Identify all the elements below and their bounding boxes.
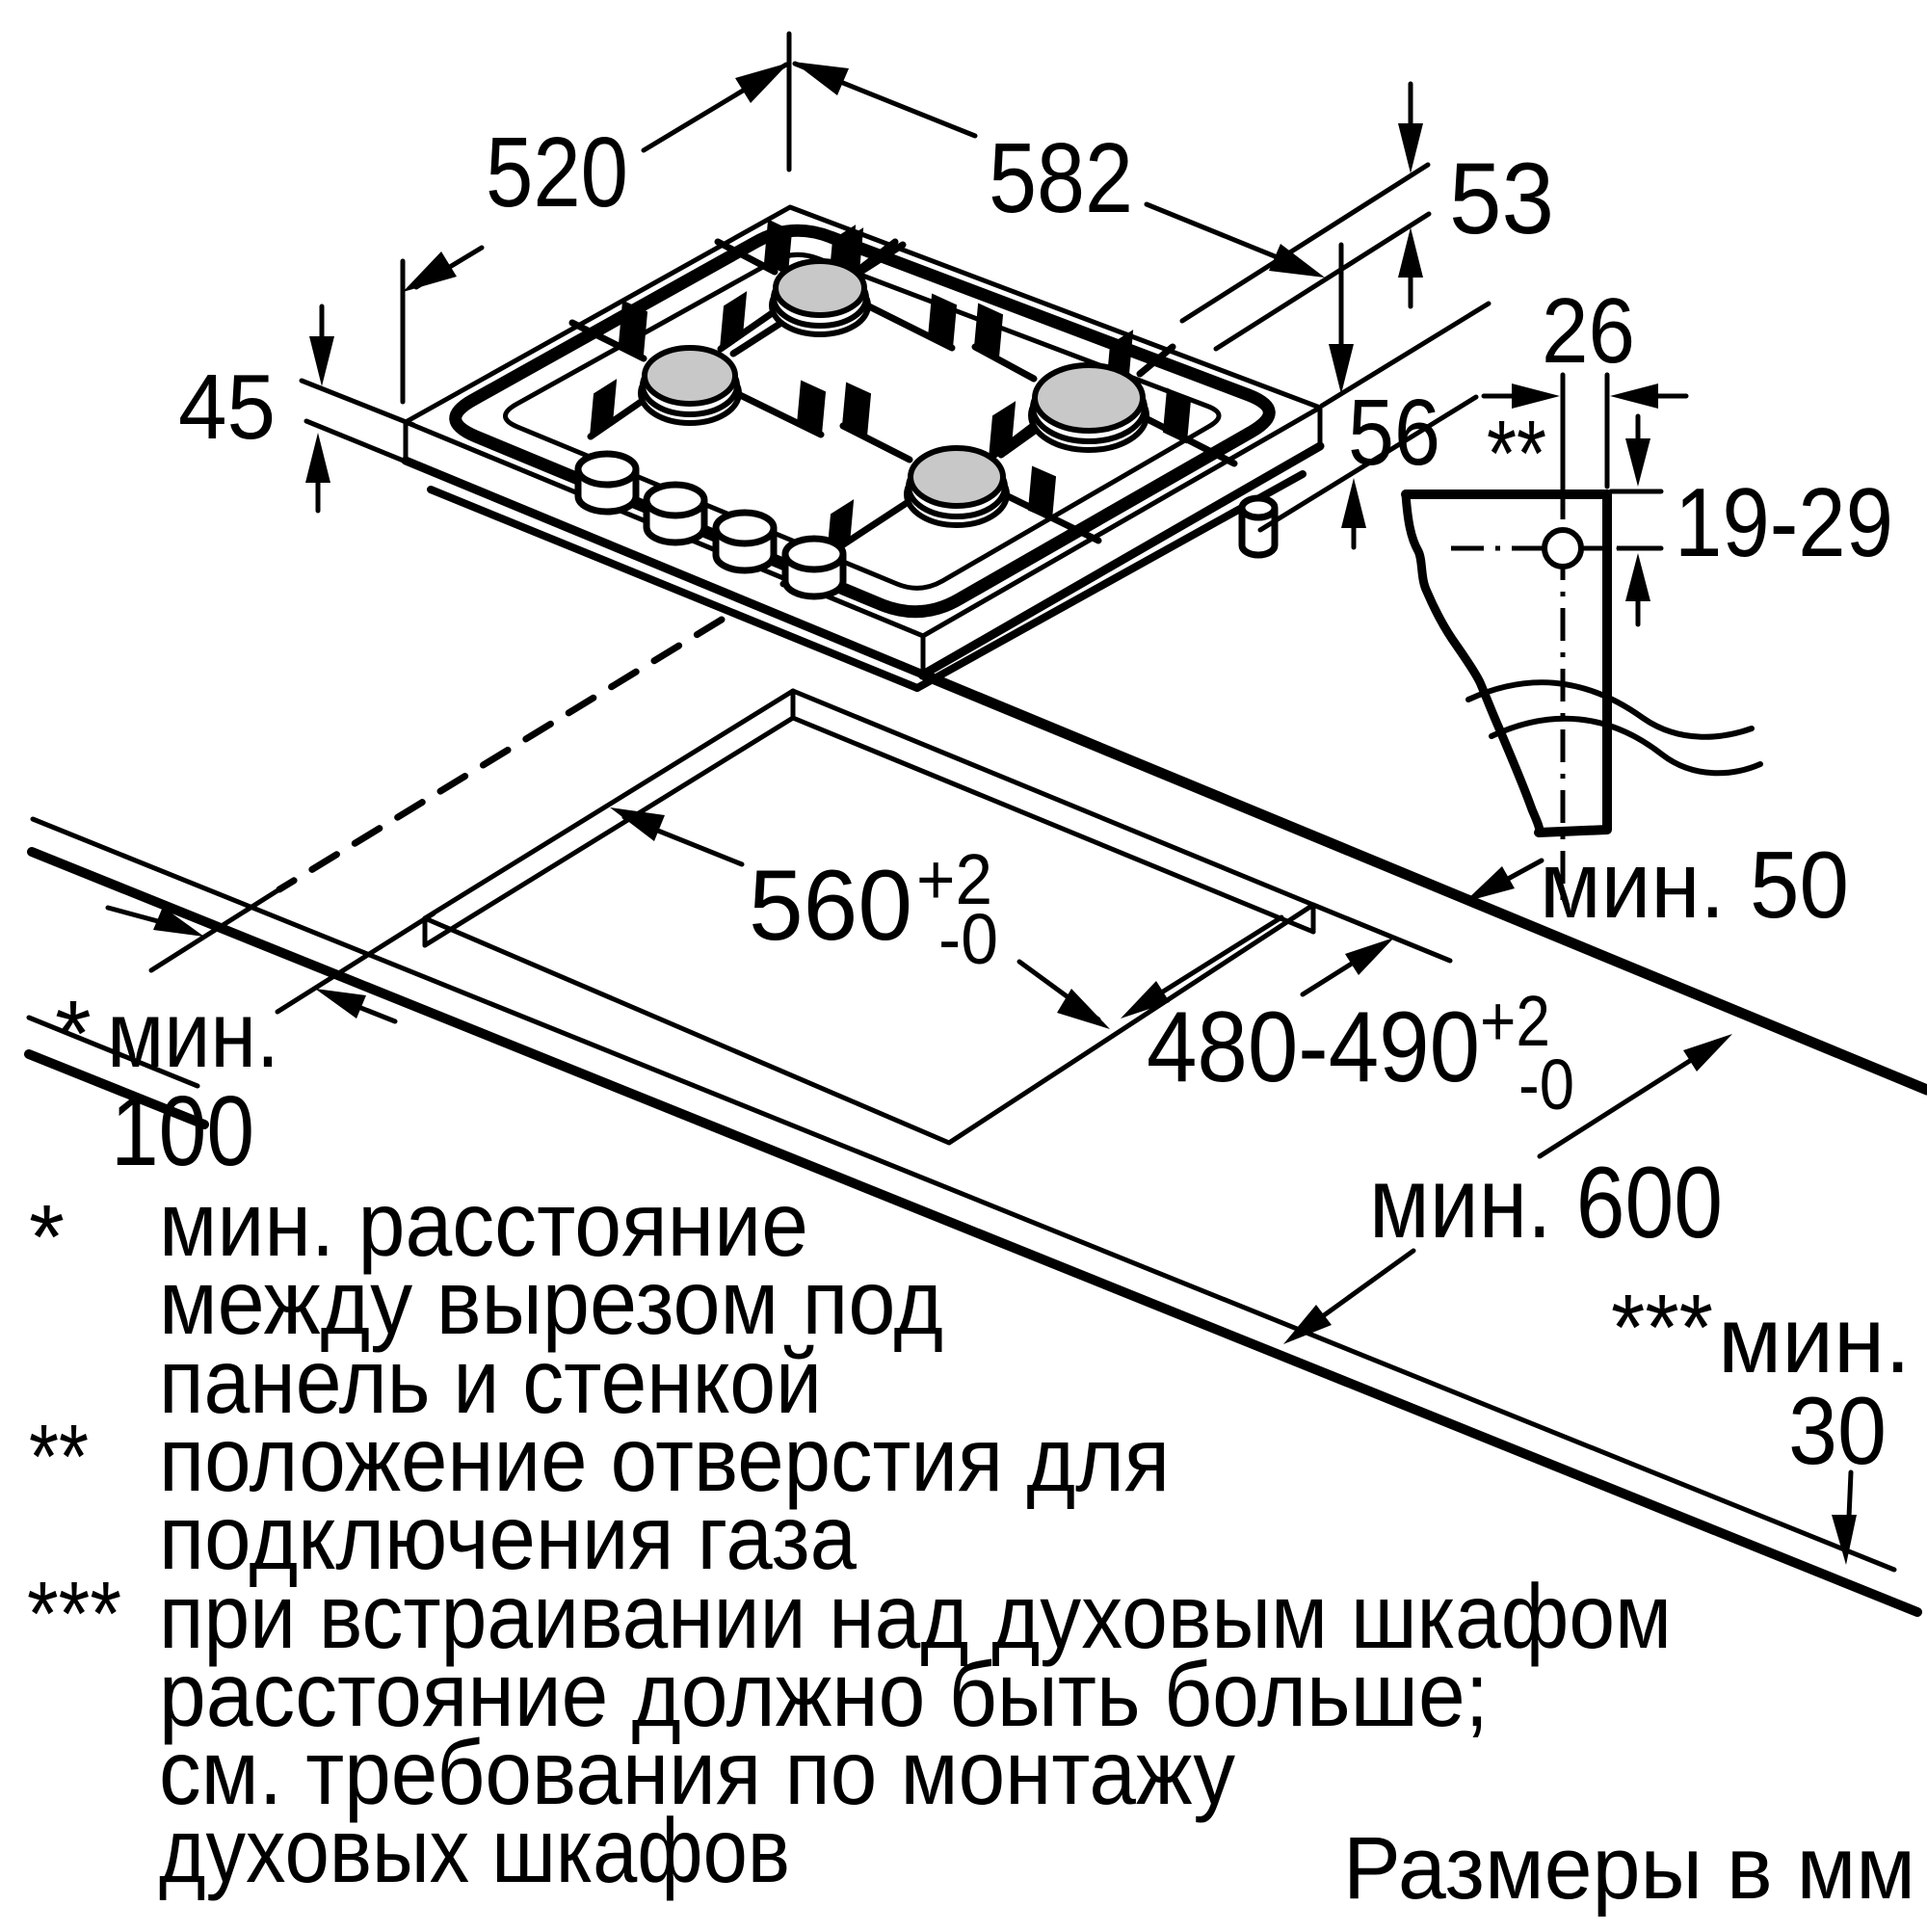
svg-text:19-29: 19-29 <box>1675 469 1893 577</box>
svg-text:*: * <box>55 981 92 1086</box>
svg-text:100: 100 <box>111 1075 254 1186</box>
svg-text:мин. 50: мин. 50 <box>1540 832 1849 938</box>
svg-text:53: 53 <box>1449 143 1554 255</box>
svg-text:26: 26 <box>1542 279 1635 383</box>
svg-text:мин. 600: мин. 600 <box>1369 1147 1723 1259</box>
svg-text:520: 520 <box>486 117 628 227</box>
svg-text:Размеры в мм: Размеры в мм <box>1343 1819 1915 1918</box>
svg-text:-0: -0 <box>938 899 998 979</box>
svg-text:*: * <box>29 1186 65 1288</box>
svg-text:582: 582 <box>989 122 1133 233</box>
svg-text:56: 56 <box>1348 380 1440 485</box>
svg-text:45: 45 <box>178 356 276 459</box>
svg-text:духовых шкафов: духовых шкафов <box>159 1800 790 1902</box>
svg-text:480-490: 480-490 <box>1147 992 1480 1103</box>
svg-text:-0: -0 <box>1518 1045 1574 1125</box>
svg-text:560: 560 <box>749 850 912 962</box>
svg-text:***: *** <box>1611 1275 1713 1380</box>
svg-text:***: *** <box>27 1563 121 1665</box>
svg-text:**: ** <box>29 1406 89 1508</box>
svg-text:мин.: мин. <box>107 982 279 1087</box>
svg-text:30: 30 <box>1788 1377 1887 1484</box>
